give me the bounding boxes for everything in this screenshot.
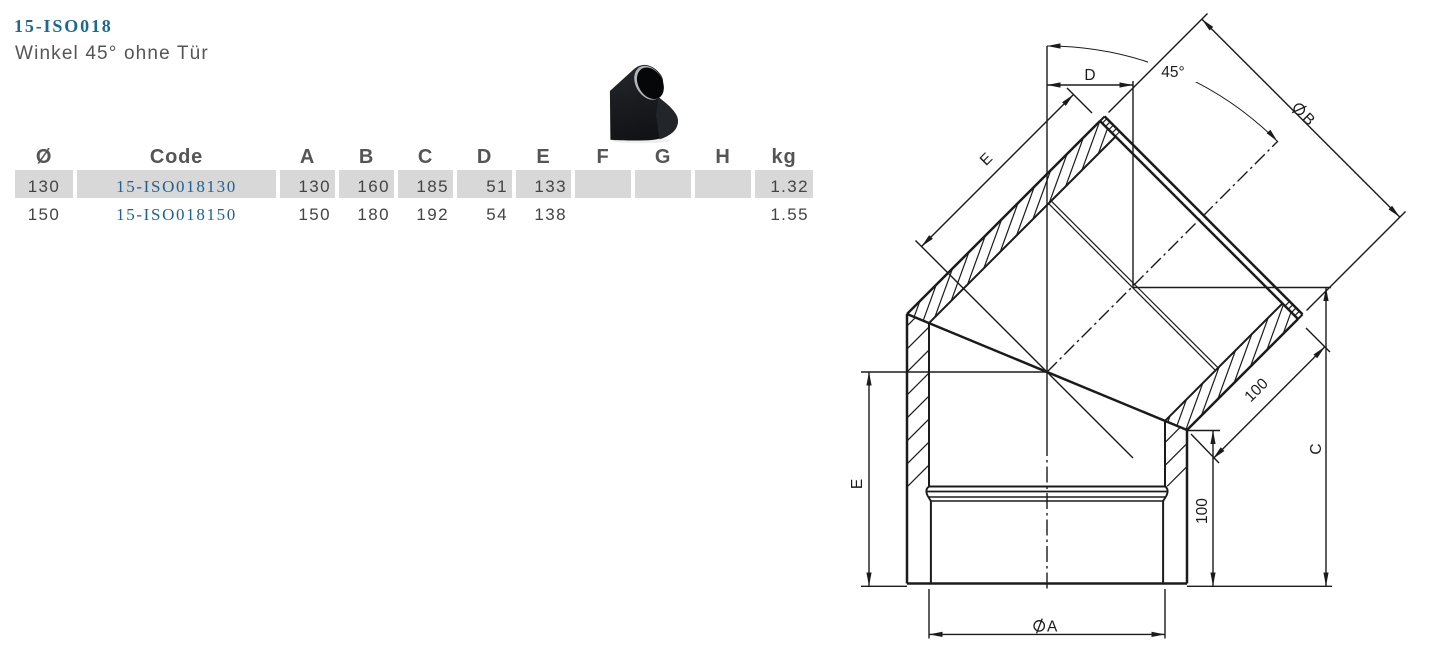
svg-text:D: D xyxy=(1084,67,1095,84)
svg-text:E: E xyxy=(977,150,996,169)
svg-text:100: 100 xyxy=(1241,375,1272,406)
svg-text:E: E xyxy=(849,479,866,489)
svg-text:100: 100 xyxy=(1194,498,1211,524)
svg-text:C: C xyxy=(1308,443,1325,454)
svg-text:A: A xyxy=(1047,619,1058,636)
svg-text:45°: 45° xyxy=(1161,64,1184,81)
